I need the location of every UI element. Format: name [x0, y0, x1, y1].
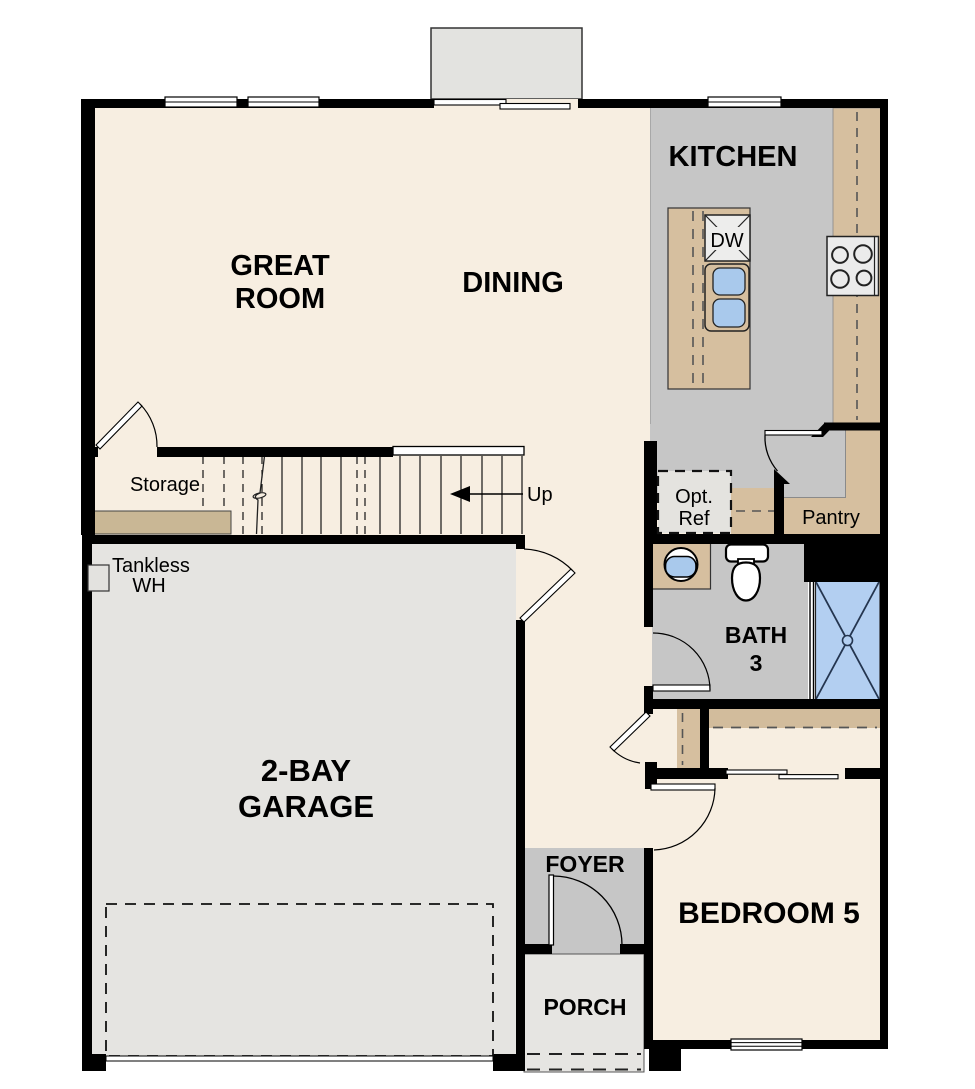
svg-text:Opt.: Opt.	[675, 486, 713, 508]
svg-text:Storage: Storage	[130, 474, 200, 496]
svg-text:PORCH: PORCH	[543, 994, 626, 1020]
svg-text:DW: DW	[710, 230, 743, 252]
svg-text:DINING: DINING	[462, 267, 564, 299]
svg-text:Tankless: Tankless	[112, 555, 190, 577]
svg-text:WH: WH	[132, 575, 165, 597]
svg-text:Up: Up	[527, 484, 553, 506]
svg-text:Pantry: Pantry	[802, 507, 860, 529]
svg-text:Ref: Ref	[678, 508, 710, 530]
svg-text:BEDROOM 5: BEDROOM 5	[678, 897, 860, 930]
svg-text:KITCHEN: KITCHEN	[669, 141, 798, 173]
svg-text:2-BAY: 2-BAY	[261, 753, 351, 788]
svg-text:GREAT: GREAT	[230, 250, 330, 282]
svg-text:FOYER: FOYER	[545, 851, 625, 877]
svg-text:ROOM: ROOM	[235, 283, 325, 315]
svg-text:GARAGE: GARAGE	[238, 789, 374, 824]
svg-text:BATH: BATH	[725, 622, 787, 648]
svg-text:3: 3	[750, 650, 763, 676]
